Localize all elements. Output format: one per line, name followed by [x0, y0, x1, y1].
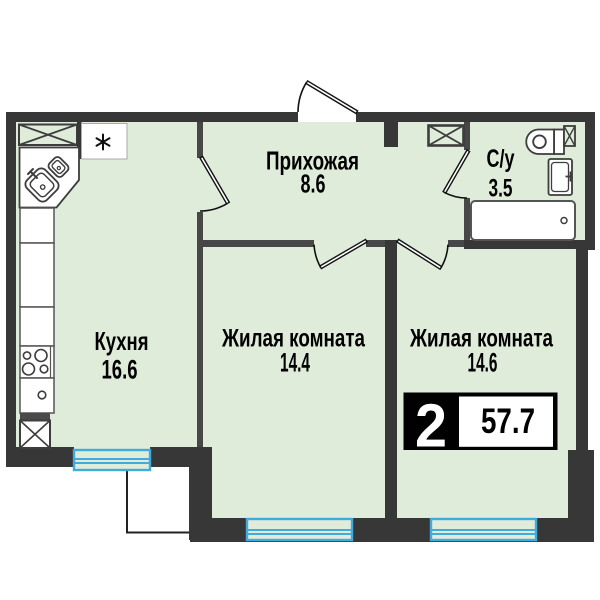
svg-text:3.5: 3.5: [489, 175, 513, 203]
svg-text:16.6: 16.6: [102, 355, 138, 385]
svg-text:57.7: 57.7: [481, 402, 535, 441]
svg-text:2: 2: [415, 392, 447, 460]
svg-text:Кухня: Кухня: [95, 326, 149, 356]
svg-text:14.4: 14.4: [280, 348, 310, 378]
svg-text:14.6: 14.6: [468, 348, 498, 378]
svg-text:8.6: 8.6: [301, 169, 326, 199]
svg-text:С/у: С/у: [487, 145, 515, 173]
